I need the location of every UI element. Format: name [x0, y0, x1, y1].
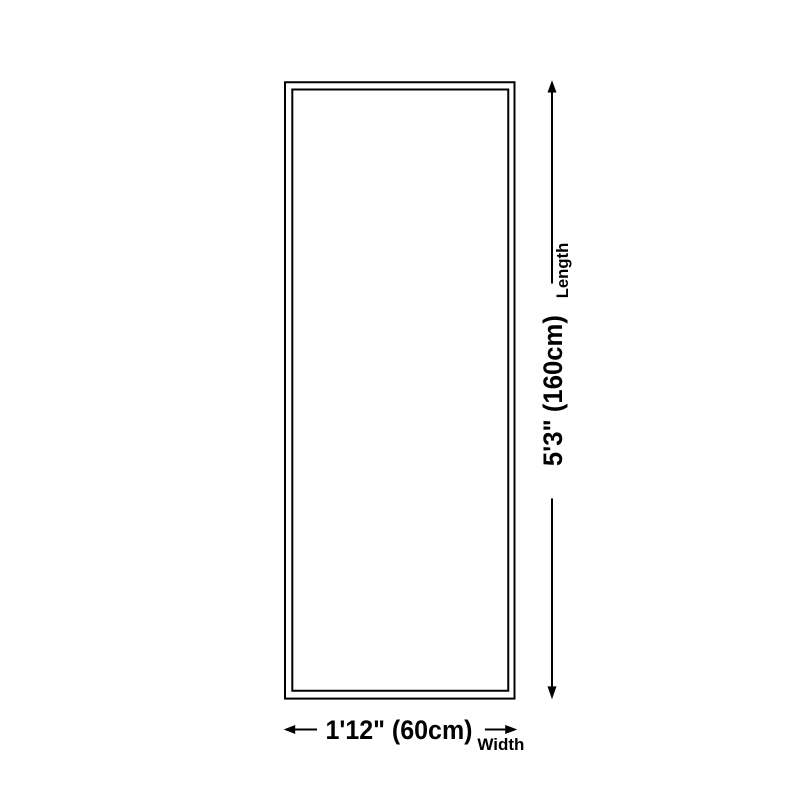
svg-text:Length: Length [554, 243, 572, 299]
svg-text:5'3" (160cm): 5'3" (160cm) [538, 315, 568, 466]
svg-text:Width: Width [477, 736, 524, 754]
svg-text:1'12" (60cm): 1'12" (60cm) [326, 715, 473, 745]
